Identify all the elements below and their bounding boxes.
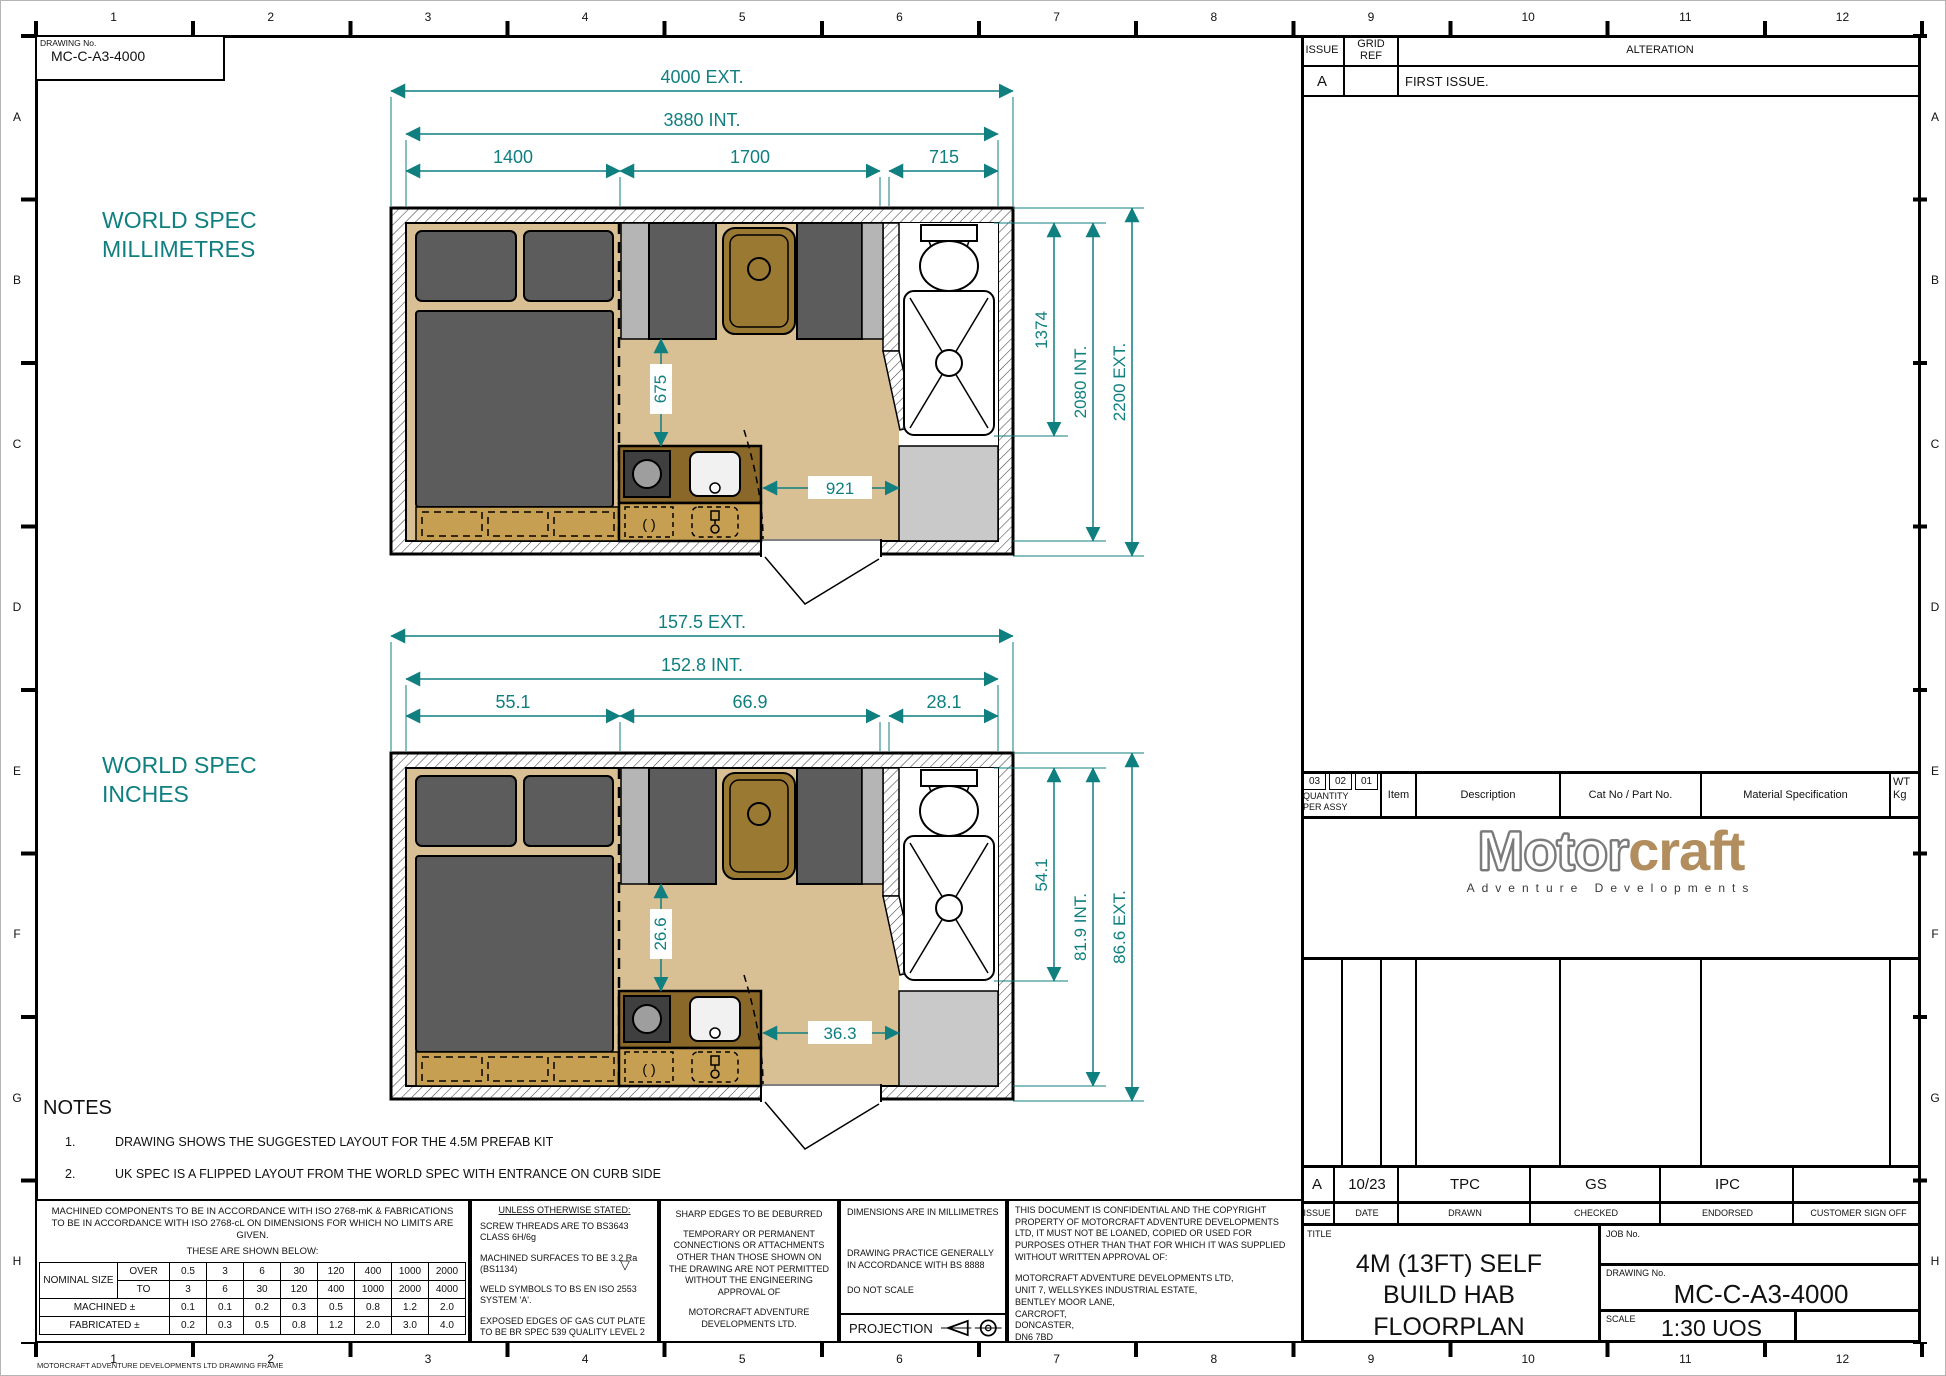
- item-header: Item: [1382, 773, 1415, 816]
- grid-row-label: E: [1925, 689, 1945, 853]
- dim-galley: 675: [651, 375, 670, 403]
- projection-label: PROJECTION: [849, 1321, 933, 1336]
- toilet-cistern: [921, 770, 977, 786]
- toilet-bowl: [920, 786, 978, 836]
- tolerance-machined-value: 0.8: [355, 1298, 392, 1316]
- tolerance-machined-value: 0.5: [318, 1298, 355, 1316]
- floorplan-inches: WORLD SPEC INCHES: [96, 601, 1196, 1161]
- projection-row: PROJECTION: [841, 1313, 1005, 1341]
- drawing-no-title-label: DRAWING No.: [1606, 1268, 1666, 1278]
- grid-col-label: 9: [1292, 7, 1449, 27]
- alteration-row-text: FIRST ISSUE.: [1399, 67, 1921, 97]
- qty-col-02: 02: [1329, 773, 1352, 790]
- notes-title: NOTES: [43, 1097, 112, 1120]
- line: [1380, 959, 1382, 1165]
- address-line: UNIT 7, WELLSYKES INDUSTRIAL ESTATE,: [1015, 1285, 1295, 1297]
- dim-vext: 2200 EXT.: [1110, 343, 1129, 421]
- grid-col-label: 11: [1607, 7, 1764, 27]
- sink-tap: [710, 483, 720, 493]
- connections-block: SHARP EDGES TO BE DEBURREDTEMPORARY OR P…: [659, 1199, 839, 1343]
- line: [1600, 1263, 1921, 1266]
- grid-col-label: 4: [507, 7, 664, 27]
- tolerance-fabricated-value: 2.0: [355, 1316, 392, 1334]
- drawing-no-label: DRAWING No.: [37, 37, 223, 48]
- kitchen-lower-cabinet: [619, 503, 761, 541]
- tolerance-fabricated-value: 0.2: [170, 1316, 207, 1334]
- line: [1341, 959, 1343, 1165]
- dim-seg3: 715: [929, 147, 959, 167]
- alteration-gridref-header: GRID REF: [1345, 35, 1399, 67]
- grid-col-label: 3: [349, 1349, 506, 1369]
- dim-bath: 54.1: [1032, 858, 1051, 891]
- dim-ext: 4000 EXT.: [660, 67, 743, 87]
- grid-row-label: G: [1925, 1016, 1945, 1180]
- grid-row-label: A: [1925, 35, 1945, 199]
- grid-letters-right: ABCDEFGH: [1925, 35, 1945, 1343]
- qty-label-line: PER ASSY: [1303, 802, 1379, 813]
- mattress: [416, 856, 613, 1052]
- tolerance-over-value: 2000: [429, 1262, 466, 1280]
- seat-end-right: [862, 223, 883, 339]
- tolerance-to-value: 3: [170, 1280, 207, 1298]
- description-header: Description: [1417, 773, 1559, 816]
- tolerance-machined-value: 0.1: [207, 1298, 244, 1316]
- grid-col-label: 8: [1135, 1349, 1292, 1369]
- machined-label: MACHINED ±: [40, 1298, 170, 1316]
- note-item-2: 2.UK SPEC IS A FLIPPED LAYOUT FROM THE W…: [65, 1167, 661, 1181]
- material-header: Material Specification: [1702, 773, 1889, 816]
- bathroom: [883, 768, 998, 1086]
- dim-vint: 2080 INT.: [1071, 346, 1090, 419]
- door-opening: [761, 539, 881, 557]
- connections-line: MOTORCRAFT ADVENTURE DEVELOPMENTS LTD.: [669, 1307, 829, 1330]
- tolerance-table: NOMINAL SIZE OVER 0.5363012040010002000 …: [39, 1262, 466, 1335]
- bench-left: [649, 768, 716, 884]
- uos-block: UNLESS OTHERWISE STATED: SCREW THREADS A…: [470, 1199, 659, 1343]
- signoff-endorsed-label: ENDORSED: [1663, 1203, 1794, 1223]
- signoff-checked-value: GS: [1533, 1167, 1661, 1201]
- line: [1559, 959, 1561, 1165]
- uos-items: SCREW THREADS ARE TO BS3643 CLASS 6H/6gM…: [472, 1221, 657, 1338]
- grid-row-label: B: [1925, 199, 1945, 363]
- door-opening: [761, 1084, 881, 1102]
- grid-col-label: 1: [35, 7, 192, 27]
- dim-seg1: 55.1: [495, 692, 530, 712]
- grid-col-label: 5: [664, 7, 821, 27]
- dim-bath: 1374: [1032, 311, 1051, 349]
- qty-col-03: 03: [1303, 773, 1326, 790]
- dim-seg3: 28.1: [926, 692, 961, 712]
- dims-line-2: DRAWING PRACTICE GENERALLY IN ACCORDANCE…: [847, 1248, 999, 1271]
- bathroom-partition: [883, 223, 899, 351]
- qty-col-01: 01: [1355, 773, 1378, 790]
- grid-col-label: 10: [1450, 7, 1607, 27]
- seat-end-left: [621, 223, 649, 339]
- dim-door: 36.3: [823, 1024, 856, 1043]
- pillow-right: [524, 231, 613, 301]
- dimensions-note-block: DIMENSIONS ARE IN MILLIMETRES DRAWING PR…: [839, 1199, 1007, 1343]
- alteration-issue-header: ISSUE: [1301, 35, 1345, 67]
- grid-col-label: 10: [1450, 1349, 1607, 1369]
- tolerance-machined-value: 0.1: [170, 1298, 207, 1316]
- tolerance-fabricated-value: 0.8: [281, 1316, 318, 1334]
- dim-vext: 86.6 EXT.: [1110, 890, 1129, 964]
- tolerance-to-value: 400: [318, 1280, 355, 1298]
- grid-row-label: F: [1925, 853, 1945, 1017]
- wt-header: WT Kg: [1893, 776, 1910, 802]
- tolerance-to-value: 2000: [392, 1280, 429, 1298]
- entry-mat: [899, 446, 998, 541]
- floorplan-inches-drawing: ( ): [96, 601, 1196, 1161]
- grid-numbers-top: 123456789101112: [35, 7, 1921, 27]
- tolerance-over-value: 30: [281, 1262, 318, 1280]
- hob-burner: [633, 460, 661, 488]
- connections-lines: SHARP EDGES TO BE DEBURREDTEMPORARY OR P…: [661, 1209, 837, 1330]
- note-text: UK SPEC IS A FLIPPED LAYOUT FROM THE WOR…: [115, 1167, 661, 1181]
- shower-drain: [936, 350, 962, 376]
- dim-int: 152.8 INT.: [661, 655, 743, 675]
- wt-label-line: WT: [1893, 776, 1910, 789]
- line: [1301, 957, 1921, 960]
- note-number: 1.: [65, 1135, 115, 1149]
- address-line: BENTLEY MOOR LANE,: [1015, 1297, 1295, 1309]
- dim-int: 3880 INT.: [663, 110, 740, 130]
- grid-col-label: 3: [349, 7, 506, 27]
- dims-line-3: DO NOT SCALE: [847, 1285, 999, 1296]
- grid-row-label: A: [7, 35, 27, 199]
- over-label: OVER: [118, 1262, 170, 1280]
- logo-word-craft: craft: [1628, 819, 1744, 882]
- scale-value: 1:30 UOS: [1661, 1315, 1762, 1342]
- kitchen: ( ): [619, 446, 761, 541]
- line: [1889, 773, 1891, 816]
- dim-seg1: 1400: [493, 147, 533, 167]
- pillow-left: [416, 231, 516, 301]
- grid-row-label: E: [7, 689, 27, 853]
- grid-col-label: 12: [1764, 7, 1921, 27]
- panel-divider: [1301, 35, 1304, 1343]
- dim-ext: 157.5 EXT.: [658, 612, 746, 632]
- company-address: MOTORCRAFT ADVENTURE DEVELOPMENTS LTD,UN…: [1015, 1273, 1295, 1343]
- tolerance-machined-value: 0.2: [244, 1298, 281, 1316]
- grid-row-label: H: [7, 1180, 27, 1344]
- drawing-title: 4M (13FT) SELF BUILD HAB FLOORPLAN: [1319, 1249, 1579, 1343]
- entry-mat: [899, 991, 998, 1086]
- qty-label-line: QUANTITY: [1303, 791, 1379, 802]
- confidential-para: THIS DOCUMENT IS CONFIDENTIAL AND THE CO…: [1015, 1205, 1295, 1263]
- note-text: DRAWING SHOWS THE SUGGESTED LAYOUT FOR T…: [115, 1135, 553, 1149]
- tolerance-to-value: 120: [281, 1280, 318, 1298]
- bathroom: [883, 223, 998, 541]
- kitchen: ( ): [619, 991, 761, 1086]
- scale-label: SCALE: [1606, 1314, 1636, 1324]
- shower-drain: [936, 895, 962, 921]
- toilet-cistern: [921, 225, 977, 241]
- uos-item: SCREW THREADS ARE TO BS3643 CLASS 6H/6g: [480, 1221, 651, 1244]
- line: [1600, 1309, 1921, 1312]
- seat-end-left: [621, 768, 649, 884]
- floorplan-mm: WORLD SPEC MILLIMETRES: [96, 56, 1196, 616]
- tolerance-machined-value: 1.2: [392, 1298, 429, 1316]
- third-angle-projection-icon: [941, 1317, 1005, 1339]
- kitchen-lower-cabinet: [619, 1048, 761, 1086]
- pillow-left: [416, 776, 516, 846]
- hob-burner: [633, 1005, 661, 1033]
- to-label: TO: [118, 1280, 170, 1298]
- door-leaf-open: [765, 1102, 879, 1149]
- confidential-block: THIS DOCUMENT IS CONFIDENTIAL AND THE CO…: [1007, 1199, 1303, 1343]
- grid-col-label: 12: [1764, 1349, 1921, 1369]
- line: [1700, 959, 1702, 1165]
- bathroom-partition: [883, 768, 899, 896]
- qty-per-assy-label: QUANTITY PER ASSY: [1303, 791, 1379, 813]
- burner-symbol: ( ): [642, 516, 655, 532]
- grid-col-label: 9: [1292, 1349, 1449, 1369]
- door-leaf-open: [765, 557, 879, 604]
- grid-col-label: 2: [192, 7, 349, 27]
- grid-col-label: 7: [978, 7, 1135, 27]
- tolerance-to-value: 1000: [355, 1280, 392, 1298]
- surface-finish-icon: ▽: [620, 1257, 630, 1273]
- address-line: MOTORCRAFT ADVENTURE DEVELOPMENTS LTD,: [1015, 1273, 1295, 1285]
- job-no-value: [1601, 1237, 1921, 1261]
- grid-col-label: 4: [507, 1349, 664, 1369]
- signoff-date-label: DATE: [1337, 1203, 1399, 1223]
- signoff-date-value: 10/23: [1337, 1167, 1399, 1201]
- grid-numbers-bottom: 123456789101112: [35, 1349, 1921, 1369]
- dims-line-1: DIMENSIONS ARE IN MILLIMETRES: [847, 1207, 999, 1218]
- company-logo: Motorcraft Adventure Developments: [1301, 823, 1921, 953]
- grid-col-label: 11: [1607, 1349, 1764, 1369]
- burner-symbol: ( ): [642, 1061, 655, 1077]
- bench-left: [649, 223, 716, 339]
- drawing-no-title-value: MC-C-A3-4000: [1601, 1279, 1921, 1310]
- tolerance-machined-value: 2.0: [429, 1298, 466, 1316]
- dinette: [621, 223, 883, 339]
- toilet-bowl: [920, 241, 978, 291]
- cat-no-header: Cat No / Part No.: [1561, 773, 1700, 816]
- dim-seg2: 66.9: [732, 692, 767, 712]
- tolerance-over-value: 6: [244, 1262, 281, 1280]
- tolerance-fabricated-value: 0.5: [244, 1316, 281, 1334]
- connections-line: TEMPORARY OR PERMANENT CONNECTIONS OR AT…: [669, 1229, 829, 1299]
- dim-door: 921: [826, 479, 854, 498]
- seat-end-right: [862, 768, 883, 884]
- tolerance-block: MACHINED COMPONENTS TO BE IN ACCORDANCE …: [35, 1199, 470, 1343]
- bench-right: [797, 223, 862, 339]
- signoff-issue-label: ISSUE: [1301, 1203, 1335, 1223]
- line: [1415, 959, 1417, 1165]
- signoff-issue-value: A: [1301, 1167, 1335, 1201]
- dim-galley: 26.6: [651, 917, 670, 950]
- grid-row-label: D: [1925, 526, 1945, 690]
- uos-item: WELD SYMBOLS TO BS EN ISO 2553 SYSTEM 'A…: [480, 1284, 651, 1307]
- uos-item: EXPOSED EDGES OF GAS CUT PLATE TO BE BR …: [480, 1316, 651, 1339]
- line: [1794, 1309, 1797, 1343]
- tolerance-over-value: 0.5: [170, 1262, 207, 1280]
- grid-row-label: H: [1925, 1180, 1945, 1344]
- tolerance-machined-value: 0.3: [281, 1298, 318, 1316]
- grid-col-label: 6: [821, 7, 978, 27]
- alteration-row-issue: A: [1301, 67, 1345, 97]
- nominal-size-label: NOMINAL SIZE: [40, 1262, 118, 1298]
- logo-subtitle: Adventure Developments: [1301, 881, 1921, 895]
- grid-col-label: 6: [821, 1349, 978, 1369]
- title-label: TITLE: [1307, 1229, 1332, 1239]
- grid-row-label: C: [7, 362, 27, 526]
- signoff-endorsed-value: IPC: [1663, 1167, 1794, 1201]
- address-line: DN6 7BD: [1015, 1332, 1295, 1344]
- tolerance-over-value: 3: [207, 1262, 244, 1280]
- tolerance-shown-below: THESE ARE SHOWN BELOW:: [37, 1246, 468, 1257]
- alteration-row-gridref: [1345, 67, 1399, 97]
- tolerance-over-value: 120: [318, 1262, 355, 1280]
- uos-heading: UNLESS OTHERWISE STATED:: [472, 1205, 657, 1215]
- note-number: 2.: [65, 1167, 115, 1181]
- signoff-drawn-label: DRAWN: [1401, 1203, 1531, 1223]
- bench-right: [797, 768, 862, 884]
- tolerance-fabricated-value: 3.0: [392, 1316, 429, 1334]
- grid-row-label: B: [7, 199, 27, 363]
- logo-word-motor: Motor: [1478, 819, 1629, 882]
- tolerance-para: MACHINED COMPONENTS TO BE IN ACCORDANCE …: [37, 1201, 468, 1242]
- line: [1301, 1223, 1921, 1226]
- grid-col-label: 8: [1135, 7, 1292, 27]
- signoff-customer-label: CUSTOMER SIGN OFF: [1796, 1203, 1921, 1223]
- tolerance-fabricated-value: 1.2: [318, 1316, 355, 1334]
- sink-tap: [710, 1028, 720, 1038]
- address-line: DONCASTER,: [1015, 1320, 1295, 1332]
- pillow-right: [524, 776, 613, 846]
- tolerance-over-value: 1000: [392, 1262, 429, 1280]
- signoff-checked-label: CHECKED: [1533, 1203, 1661, 1223]
- frame-credit: MOTORCRAFT ADVENTURE DEVELOPMENTS LTD DR…: [37, 1361, 283, 1370]
- floorplan-mm-drawing: ( ): [96, 56, 1196, 616]
- grid-row-label: G: [7, 1016, 27, 1180]
- dinette: [621, 768, 883, 884]
- tolerance-to-value: 6: [207, 1280, 244, 1298]
- alteration-header: ALTERATION: [1399, 35, 1921, 67]
- note-item-1: 1.DRAWING SHOWS THE SUGGESTED LAYOUT FOR…: [65, 1135, 553, 1149]
- dim-vint: 81.9 INT.: [1071, 893, 1090, 961]
- tolerance-to-value: 4000: [429, 1280, 466, 1298]
- grid-row-label: C: [1925, 362, 1945, 526]
- wt-label-line: Kg: [1893, 789, 1910, 802]
- tolerance-to-value: 30: [244, 1280, 281, 1298]
- connections-line: SHARP EDGES TO BE DEBURRED: [669, 1209, 829, 1221]
- tolerance-fabricated-value: 0.3: [207, 1316, 244, 1334]
- address-line: CARCROFT,: [1015, 1309, 1295, 1321]
- signoff-drawn-value: TPC: [1401, 1167, 1531, 1201]
- grid-row-label: F: [7, 853, 27, 1017]
- mattress: [416, 311, 613, 507]
- line: [1889, 959, 1891, 1165]
- grid-col-label: 5: [664, 1349, 821, 1369]
- tolerance-fabricated-value: 4.0: [429, 1316, 466, 1334]
- drawing-sheet: 123456789101112 123456789101112 ABCDEFGH…: [0, 0, 1946, 1376]
- dim-seg2: 1700: [730, 147, 770, 167]
- grid-row-label: D: [7, 526, 27, 690]
- grid-col-label: 7: [978, 1349, 1135, 1369]
- grid-letters-left: ABCDEFGH: [7, 35, 27, 1343]
- fabricated-label: FABRICATED ±: [40, 1316, 170, 1334]
- signoff-customer-value: [1796, 1167, 1921, 1201]
- tolerance-over-value: 400: [355, 1262, 392, 1280]
